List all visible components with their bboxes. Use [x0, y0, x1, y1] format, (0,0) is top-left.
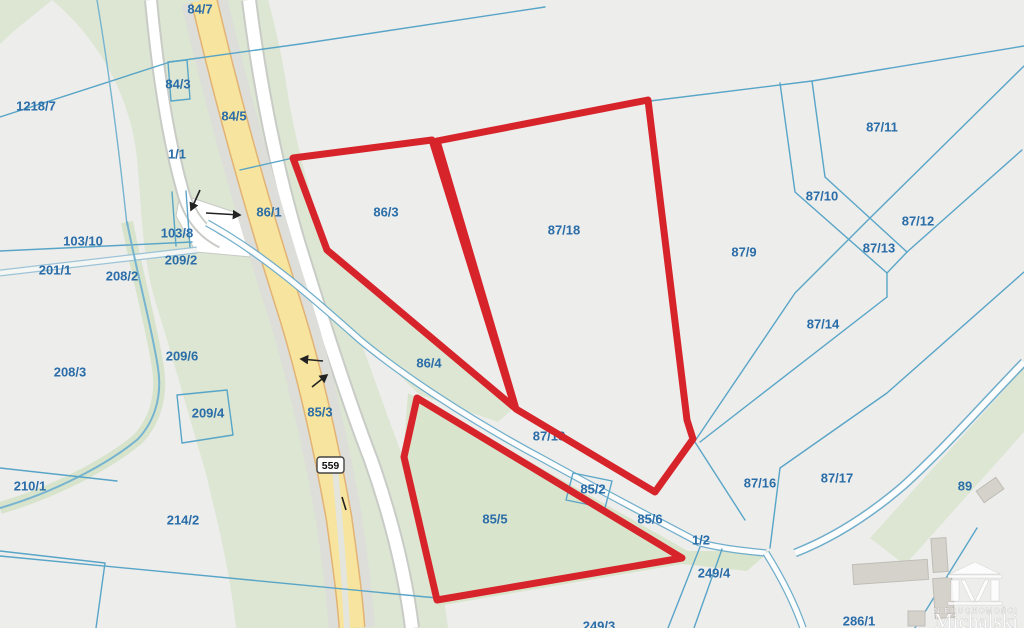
parcel-label: 85/2 [580, 482, 605, 497]
route-shield: 559 [317, 457, 344, 473]
parcel-label: 103/10 [63, 234, 103, 249]
parcel-label: 87/11 [866, 120, 898, 135]
parcel-label: 209/2 [165, 253, 198, 268]
parcel-label: 85/6 [637, 512, 662, 527]
parcel-label: 87/13 [863, 241, 896, 256]
parcel-label: 84/5 [221, 109, 246, 124]
parcel-label: 249/3 [583, 619, 616, 628]
parcel-label: 87/18 [548, 223, 581, 238]
parcel-label: 1218/7 [16, 99, 56, 114]
parcel-label: 87/14 [807, 317, 840, 332]
parcel-label: 103/8 [161, 226, 194, 241]
parcel-label: 286/1 [843, 614, 876, 628]
parcel-label: 87/16 [744, 476, 777, 491]
parcel-label: 249/4 [698, 566, 731, 581]
parcel-label: 85/5 [482, 512, 507, 527]
parcel-label: 1/2 [692, 533, 710, 548]
parcel-label: 87/10 [806, 189, 839, 204]
parcel-label: 89 [958, 479, 972, 494]
parcel-label: 201/1 [39, 263, 72, 278]
parcel-label: 86/3 [373, 205, 398, 220]
parcel-label: 1/1 [168, 147, 186, 162]
map-viewport: 559 84/784/31218/784/587/111/187/1086/18… [0, 0, 1024, 628]
parcel-label: 210/1 [14, 479, 47, 494]
parcel-label: 85/3 [307, 405, 332, 420]
parcel-label: 87/9 [731, 245, 756, 260]
watermark-brand-name: Michalski [934, 609, 1018, 628]
parcel-label: 214/2 [167, 513, 200, 528]
map-canvas[interactable]: 559 84/784/31218/784/587/111/187/1086/18… [0, 0, 1024, 628]
parcel-label: 208/2 [106, 269, 139, 284]
parcel-label: 87/12 [902, 214, 935, 229]
parcel-label: 86/4 [416, 356, 442, 371]
parcel-label: 87/17 [821, 471, 854, 486]
parcel-label: 84/3 [165, 77, 190, 92]
route-shield-number: 559 [322, 460, 340, 472]
parcel-label: 86/1 [256, 205, 281, 220]
parcel-label: 84/7 [187, 2, 212, 17]
parcel-label: 208/3 [54, 365, 87, 380]
parcel-label: 209/6 [166, 349, 199, 364]
parcel-label: 209/4 [192, 406, 225, 421]
